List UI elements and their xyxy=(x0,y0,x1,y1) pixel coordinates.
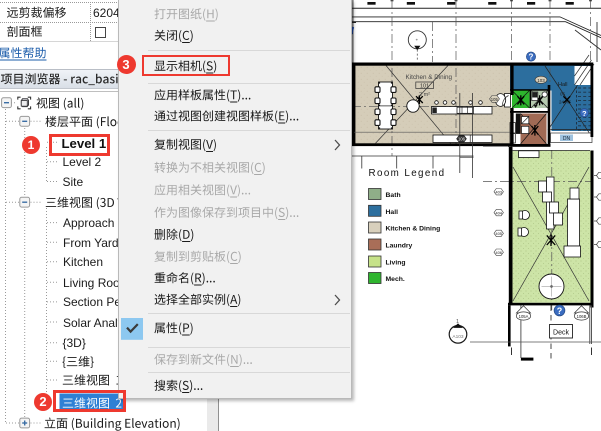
svg-text:105: 105 xyxy=(491,97,499,102)
svg-text:406: 406 xyxy=(495,250,502,255)
svg-text:Room Legend: Room Legend xyxy=(369,168,446,179)
svg-text:Mech.: Mech. xyxy=(386,276,405,283)
svg-text:105A: 105A xyxy=(519,314,529,319)
svg-text:Hall: Hall xyxy=(558,82,567,88)
svg-text:Hall: Hall xyxy=(386,209,399,216)
svg-text:1: 1 xyxy=(456,319,459,325)
svg-text:101: 101 xyxy=(420,84,429,90)
svg-text:DN: DN xyxy=(563,136,571,142)
svg-text:103: 103 xyxy=(537,78,545,83)
svg-text:A103: A103 xyxy=(452,334,464,340)
svg-text:Bath: Bath xyxy=(386,192,401,199)
svg-text:106B: 106B xyxy=(577,314,587,319)
svg-text:Living: Living xyxy=(386,260,406,267)
svg-text:05: 05 xyxy=(560,92,566,97)
svg-text:404: 404 xyxy=(495,210,502,215)
svg-text:24 m²: 24 m² xyxy=(559,100,571,105)
svg-text:2 m²: 2 m² xyxy=(419,92,430,98)
svg-text:?: ? xyxy=(582,109,587,118)
svg-text:?: ? xyxy=(557,306,563,316)
svg-text:405: 405 xyxy=(495,231,502,236)
svg-text:403: 403 xyxy=(495,190,502,195)
svg-text:Kitchen & Dining: Kitchen & Dining xyxy=(406,74,453,81)
svg-text:?: ? xyxy=(529,53,534,62)
svg-text:106: 106 xyxy=(458,137,466,142)
svg-text:Kitchen & Dining: Kitchen & Dining xyxy=(386,226,441,233)
svg-text:Deck: Deck xyxy=(553,330,569,337)
svg-text:Laundry: Laundry xyxy=(386,243,413,250)
